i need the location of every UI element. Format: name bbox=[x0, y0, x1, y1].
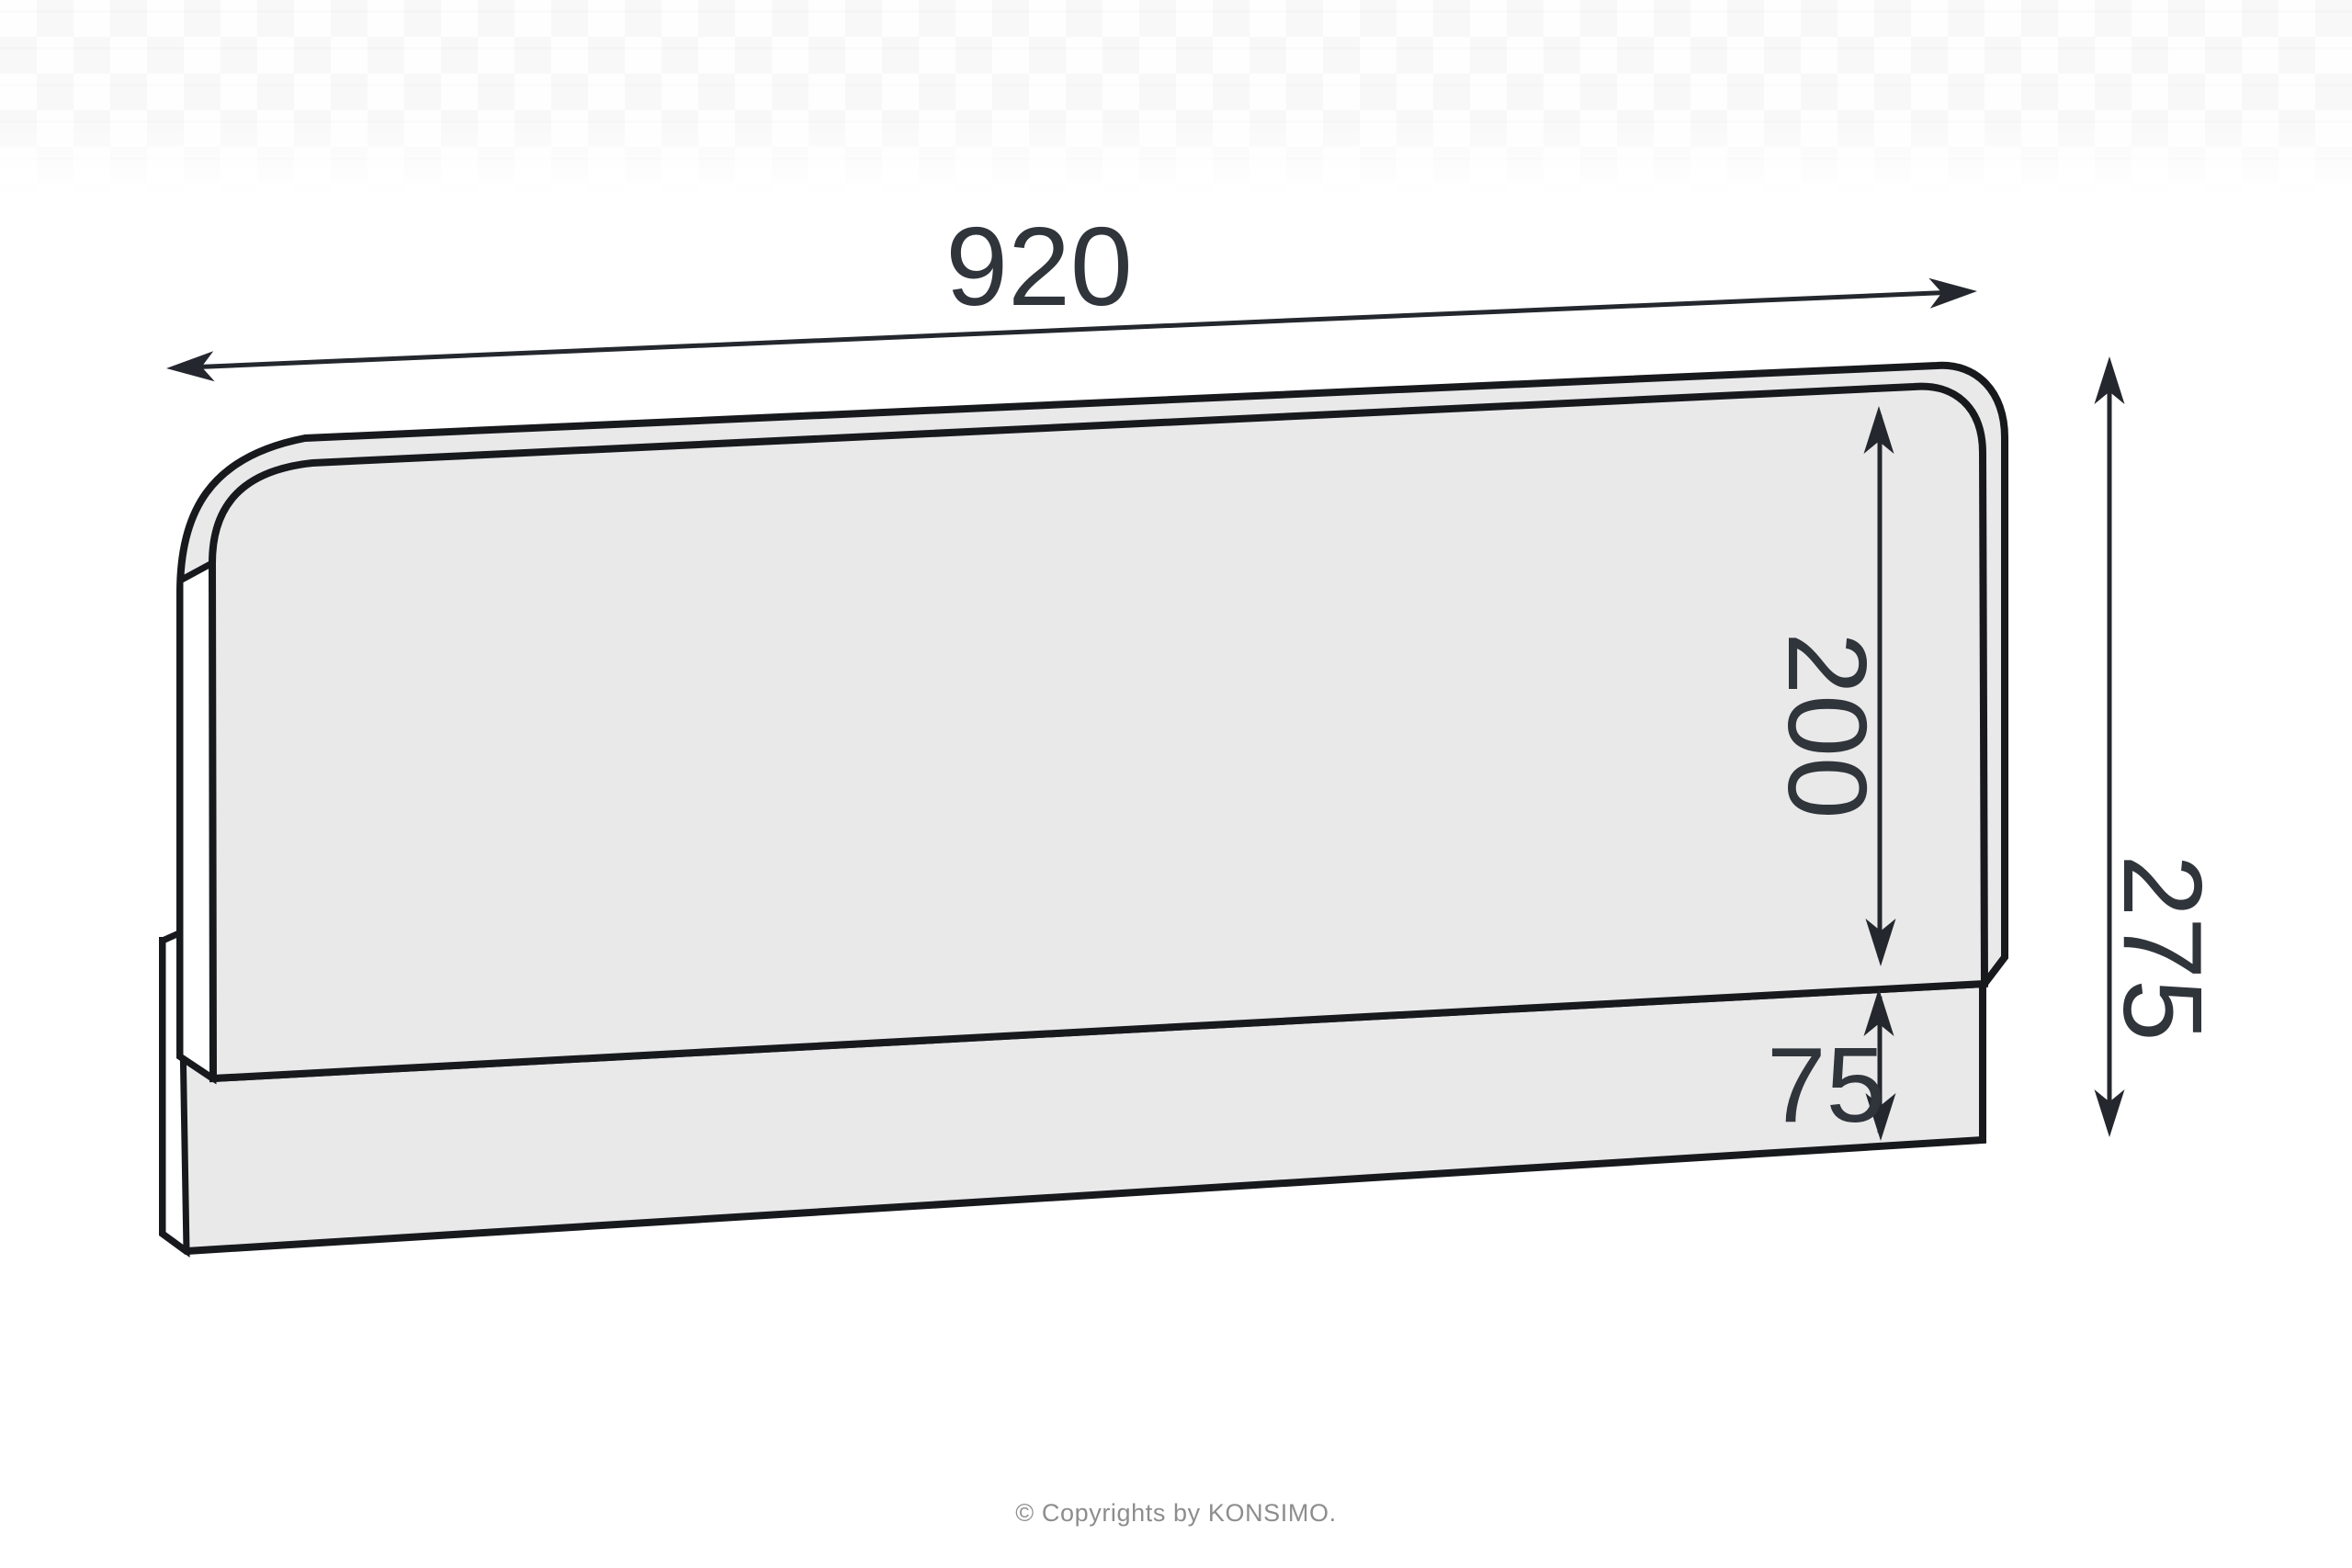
headboard-panel bbox=[180, 366, 2005, 1078]
panel-left-side-face bbox=[180, 563, 213, 1078]
dim-rail-height-label: 75 bbox=[1767, 1025, 1885, 1145]
page: 920 200 75 275 © Copyrights by KONSIMO. bbox=[0, 0, 2352, 1568]
dim-width: 920 bbox=[165, 204, 1977, 383]
panel-front-face bbox=[212, 387, 1984, 1078]
dim-total-height-label: 275 bbox=[2100, 854, 2225, 1042]
dim-panel-height-label: 200 bbox=[1765, 632, 1890, 819]
dim-width-label: 920 bbox=[945, 204, 1133, 329]
dim-total-height: 275 bbox=[2095, 356, 2226, 1137]
copyright-text: © Copyrights by KONSIMO. bbox=[0, 1499, 2352, 1528]
technical-drawing: 920 200 75 275 bbox=[0, 0, 2352, 1568]
